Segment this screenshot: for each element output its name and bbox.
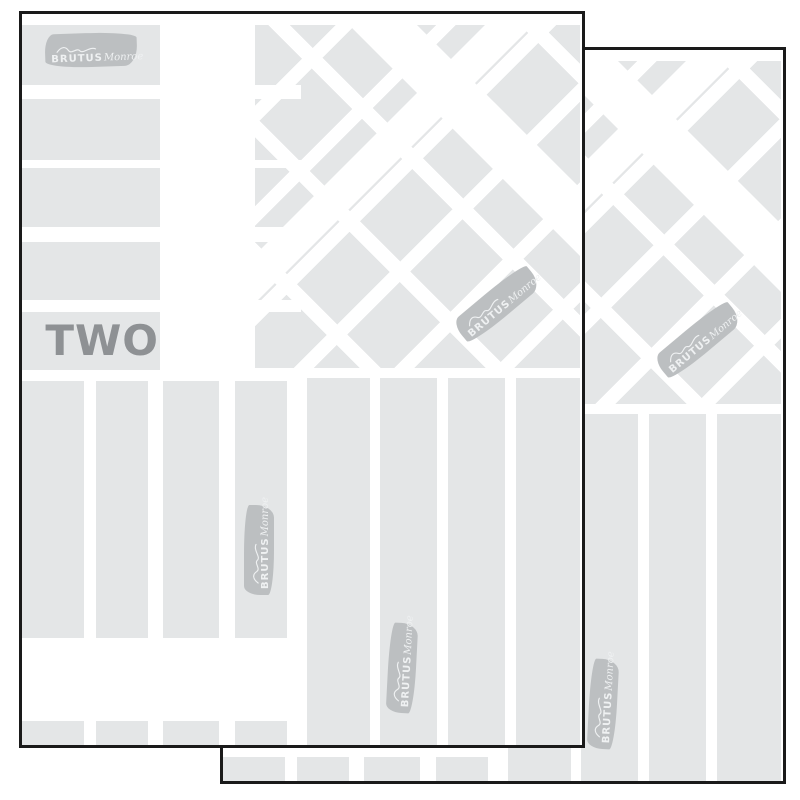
map-block [448, 378, 505, 745]
paper-pattern: TWO BRUTUS Monroe [22, 14, 582, 745]
map-block [436, 757, 488, 781]
map-block [516, 378, 580, 745]
map-block [717, 414, 781, 781]
map-block [96, 381, 148, 638]
brand-stamp-text: BRUTUS Monroe [602, 664, 616, 743]
street-gap [255, 300, 301, 312]
brand-stamp: BRUTUS Monroe [244, 505, 274, 595]
brand-stamp-text: BRUTUS Monroe [261, 510, 271, 589]
map-block [22, 99, 160, 160]
brand-stamp: BRUTUS Monroe [44, 31, 137, 68]
map-block [297, 757, 349, 781]
brand-stamp-text: BRUTUS Monroe [401, 628, 415, 707]
paper-sheet-front: TWO BRUTUS Monroe [19, 11, 585, 748]
page-canvas: { "colors": { "canvas": "#ffffff", "pape… [0, 0, 800, 800]
street-gap [255, 160, 301, 168]
map-block [22, 721, 84, 745]
map-block-labeled: TWO [22, 312, 160, 370]
map-block [96, 721, 148, 745]
brand-stamp-text: BRUTUS Monroe [51, 53, 132, 66]
map-block [163, 721, 219, 745]
page-number-label: TWO [45, 320, 160, 362]
map-block [235, 721, 287, 745]
map-block [163, 381, 219, 638]
map-block [649, 414, 706, 781]
street-gap [255, 227, 301, 242]
street-gap [255, 85, 301, 99]
diagonal-street-grid [255, 25, 580, 368]
diagonal-avenue [255, 25, 580, 368]
map-block [307, 378, 370, 745]
map-block [22, 381, 84, 638]
map-block [22, 242, 160, 300]
map-block [364, 757, 420, 781]
map-block [223, 757, 285, 781]
map-block [22, 168, 160, 227]
